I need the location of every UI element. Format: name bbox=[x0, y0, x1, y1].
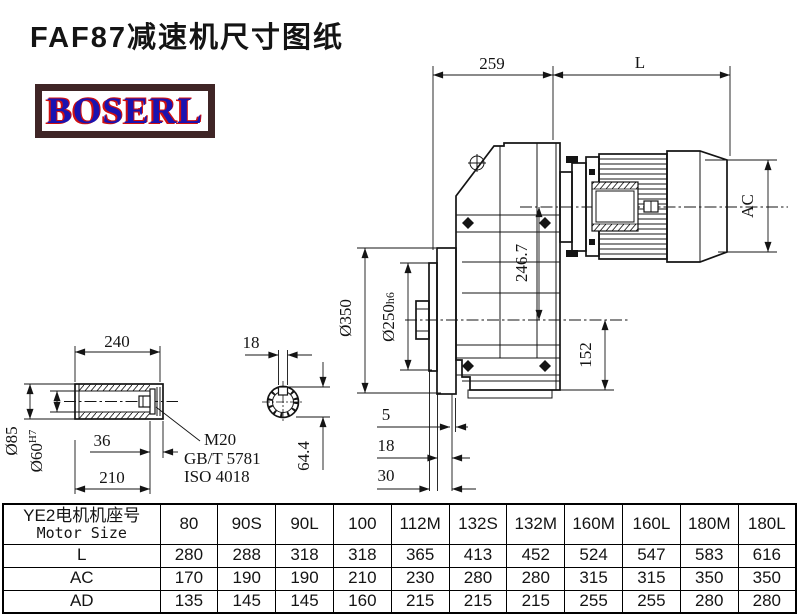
col-header: 80 bbox=[160, 504, 218, 544]
eyebolt-mark bbox=[468, 154, 486, 172]
label-bolt-thread: M20 bbox=[204, 430, 236, 449]
motor-size-table: YE2电机机座号 Motor Size 80 90S 90L 100 112M … bbox=[2, 503, 797, 614]
dimension-lines bbox=[30, 75, 768, 489]
dim-spigot-od: Ø250h6 bbox=[379, 292, 398, 342]
col-header: 132S bbox=[449, 504, 507, 544]
col-header: 90S bbox=[218, 504, 276, 544]
col-header: 160M bbox=[565, 504, 623, 544]
centerlines bbox=[64, 207, 788, 423]
table-cell: 288 bbox=[218, 544, 276, 567]
dim-top-width: 259 bbox=[479, 54, 505, 73]
header-en: Motor Size bbox=[4, 525, 160, 542]
col-header: 90L bbox=[276, 504, 334, 544]
dim-retainer-depth: 36 bbox=[94, 431, 111, 450]
dim-foot-to-axis: 152 bbox=[576, 342, 595, 368]
table-cell: 280 bbox=[507, 567, 565, 590]
col-header: 180L bbox=[738, 504, 796, 544]
table-cell: 280 bbox=[738, 590, 796, 613]
col-header: 112M bbox=[391, 504, 449, 544]
dim-face-offset-1: 5 bbox=[382, 405, 391, 424]
row-label: AC bbox=[3, 567, 160, 590]
dim-spigot-tol: h6 bbox=[383, 292, 397, 304]
table-cell: 413 bbox=[449, 544, 507, 567]
table-cell: 280 bbox=[680, 590, 738, 613]
technical-drawing: 259 L AC 246.7 152 Ø350 Ø250h6 5 18 30 2… bbox=[0, 0, 800, 503]
clamp-bolt-mark bbox=[566, 156, 578, 163]
row-label: L bbox=[3, 544, 160, 567]
dim-shaft-od: Ø85 bbox=[2, 426, 21, 455]
dim-face-offset-3: 30 bbox=[378, 466, 395, 485]
table-cell: 452 bbox=[507, 544, 565, 567]
table-cell: 350 bbox=[738, 567, 796, 590]
table-cell: 318 bbox=[276, 544, 334, 567]
table-cell: 280 bbox=[160, 544, 218, 567]
table-cell: 135 bbox=[160, 590, 218, 613]
table-cell: 145 bbox=[276, 590, 334, 613]
table-cell: 365 bbox=[391, 544, 449, 567]
table-cell: 160 bbox=[333, 590, 391, 613]
col-header: 100 bbox=[333, 504, 391, 544]
table-cell: 583 bbox=[680, 544, 738, 567]
table-cell: 145 bbox=[218, 590, 276, 613]
table-cell: 255 bbox=[565, 590, 623, 613]
dim-motor-length: L bbox=[635, 53, 645, 72]
table-cell: 215 bbox=[449, 590, 507, 613]
fan-cover bbox=[667, 151, 727, 262]
dim-keyway-width: 18 bbox=[243, 333, 260, 352]
col-header: 160L bbox=[623, 504, 681, 544]
col-header: 132M bbox=[507, 504, 565, 544]
table-cell: 230 bbox=[391, 567, 449, 590]
table-cell: 350 bbox=[680, 567, 738, 590]
bolt-mark bbox=[462, 360, 474, 372]
gearbox-housing bbox=[456, 143, 560, 398]
table-row: L 280 288 318 318 365 413 452 524 547 58… bbox=[3, 544, 796, 567]
dim-flange-od: Ø350 bbox=[336, 299, 355, 337]
table-cell: 315 bbox=[623, 567, 681, 590]
table-cell: 318 bbox=[333, 544, 391, 567]
label-bolt-std-iso: ISO 4018 bbox=[184, 467, 250, 486]
bolt-mark bbox=[539, 360, 551, 372]
table-row: AD 135 145 145 160 215 215 215 255 255 2… bbox=[3, 590, 796, 613]
dim-keyway-height: 64.4 bbox=[294, 441, 313, 471]
col-header: 180M bbox=[680, 504, 738, 544]
table-cell: 255 bbox=[623, 590, 681, 613]
header-cn: YE2电机机座号 bbox=[4, 507, 160, 526]
bolt-mark bbox=[462, 217, 474, 229]
dim-bore: Ø60H7 bbox=[27, 429, 46, 472]
table-cell: 215 bbox=[507, 590, 565, 613]
bolt-mark bbox=[589, 239, 595, 245]
dim-motor-diameter: AC bbox=[738, 194, 757, 218]
table-cell: 547 bbox=[623, 544, 681, 567]
clamp-bolt-mark bbox=[566, 250, 578, 257]
dim-bore-tol: H7 bbox=[27, 429, 39, 443]
table-cell: 210 bbox=[333, 567, 391, 590]
label-bolt-std-gb: GB/T 5781 bbox=[184, 449, 261, 468]
table-cell: 190 bbox=[276, 567, 334, 590]
motor bbox=[560, 151, 727, 262]
dim-axis-height: 246.7 bbox=[512, 243, 531, 282]
dimensions: 259 L AC 246.7 152 Ø350 Ø250h6 5 18 30 2… bbox=[2, 53, 777, 494]
table-cell: 190 bbox=[218, 567, 276, 590]
dim-spigot-od-value: Ø250 bbox=[379, 304, 398, 342]
dim-face-offset-2: 18 bbox=[378, 436, 395, 455]
extension-lines bbox=[24, 66, 777, 494]
table-cell: 315 bbox=[565, 567, 623, 590]
dim-bore-depth: 210 bbox=[99, 468, 125, 487]
table-cell: 524 bbox=[565, 544, 623, 567]
table-cell: 616 bbox=[738, 544, 796, 567]
output-flange bbox=[416, 248, 456, 394]
table-row: AC 170 190 190 210 230 280 280 315 315 3… bbox=[3, 567, 796, 590]
table-cell: 280 bbox=[449, 567, 507, 590]
row-label: AD bbox=[3, 590, 160, 613]
bolt-mark bbox=[589, 169, 595, 175]
dim-shaft-length: 240 bbox=[104, 332, 130, 351]
table-header-motor-size: YE2电机机座号 Motor Size bbox=[3, 504, 160, 544]
page: { "title": "FAF87减速机尺寸图纸", "logo": { "te… bbox=[0, 0, 800, 614]
table-cell: 215 bbox=[391, 590, 449, 613]
table-header-row: YE2电机机座号 Motor Size 80 90S 90L 100 112M … bbox=[3, 504, 796, 544]
dim-bore-value: Ø60 bbox=[27, 443, 46, 472]
table-cell: 170 bbox=[160, 567, 218, 590]
bolt-mark bbox=[539, 217, 551, 229]
